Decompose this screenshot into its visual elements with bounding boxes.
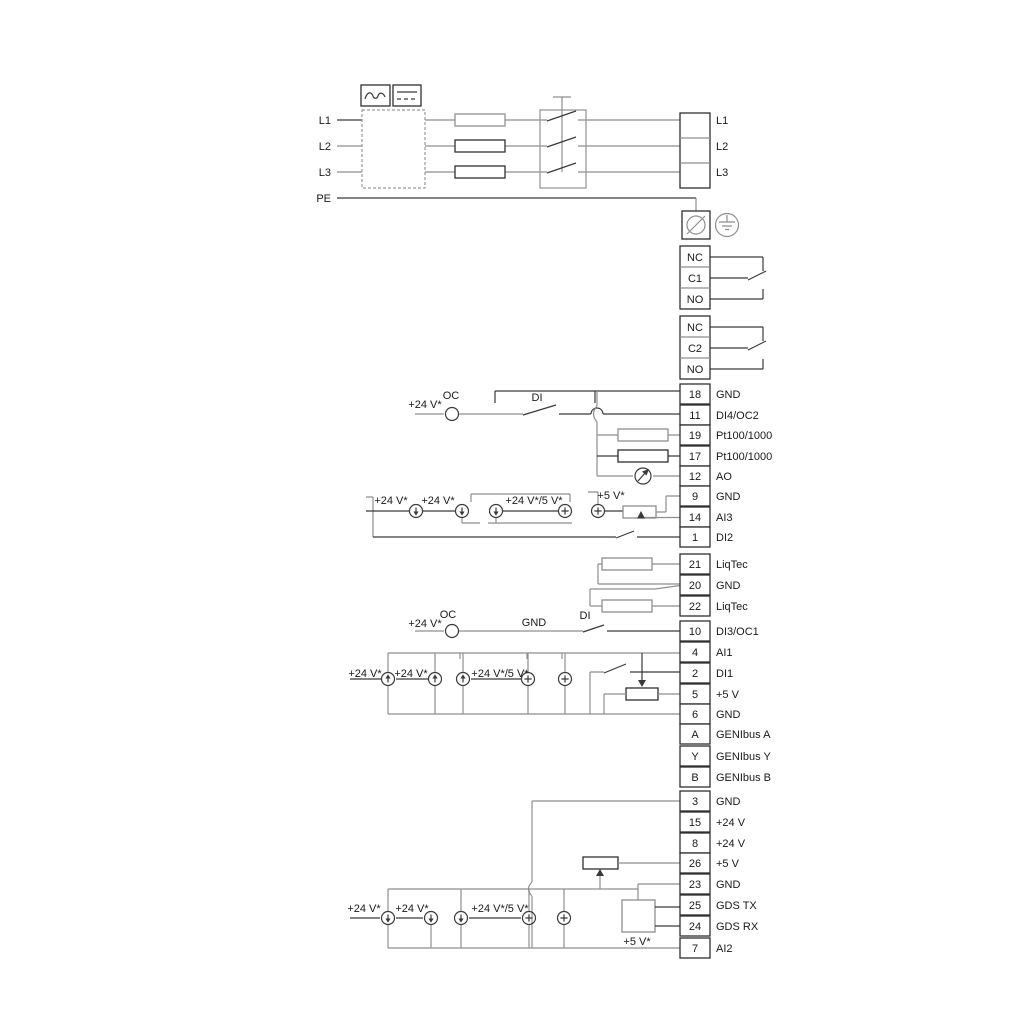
label-g-supply1: +24 V* [347,903,381,915]
terminal-label-17: Pt100/1000 [716,451,772,463]
terminal-label-11: DI4/OC2 [716,410,759,422]
terminal-pin-8: 8 [692,838,698,850]
terminal-label-B: GENIbus B [716,772,771,784]
current-source-icon [457,673,470,686]
terminal-label-7: AI2 [716,943,733,955]
label-d-di: DI [580,610,591,622]
input-phase-label-L2: L2 [319,141,331,153]
section-di4 [415,391,680,484]
terminal-pin-26: 26 [689,858,701,870]
relay-terminal-NC: NC [687,322,703,334]
dc-symbol-box [393,85,421,106]
label-g-5v: +5 V* [623,936,651,948]
label-d-oc: OC [440,609,457,621]
label-g-supply3: +24 V*/5 V* [471,903,529,915]
terminal-pin-24: 24 [689,921,701,933]
di1-switch [604,664,626,673]
terminal-label-21: LiqTec [716,559,748,571]
terminal-label-26: +5 V [716,858,740,870]
pt100-resistor-19 [618,429,668,441]
terminal-pin-6: 6 [692,709,698,721]
power-input-lines [337,120,696,211]
open-collector-icon [446,408,459,421]
voltage-source-icon [559,673,572,686]
open-collector-icon [446,625,459,638]
terminal-pin-21: 21 [689,559,701,571]
input-phase-label-L3: L3 [319,167,331,179]
output-phase-label-L1: L1 [716,115,728,127]
terminal-label-9: GND [716,491,741,503]
terminal-pin-18: 18 [689,389,701,401]
pe-terminal [682,211,710,239]
terminal-pin-Y: Y [691,751,699,763]
terminal-label-10: DI3/OC1 [716,626,759,638]
ac-symbol-box [361,85,390,106]
wiring-diagram-svg: L1L2L3PEL1L2L3NCC1NONCC2NO18GND11DI4/OC2… [0,0,1024,1024]
terminal-pin-B: B [691,772,698,784]
label-a-supply: +24 V* [408,399,442,411]
liqtec-sensor-21 [602,558,652,570]
label-g-supply2: +24 V* [395,903,429,915]
terminal-pin-3: 3 [692,796,698,808]
label-e-supply3: +24 V*/5 V* [471,668,529,680]
terminal-label-1: DI2 [716,532,733,544]
terminal-label-14: AI3 [716,512,733,524]
terminal-label-20: GND [716,580,741,592]
setpoint-potentiometer [583,857,618,869]
section-di3 [415,625,680,638]
terminal-pin-12: 12 [689,471,701,483]
input-phase-label-L1: L1 [319,115,331,127]
terminal-label-15: +24 V [716,817,746,829]
terminal-pin-A: A [691,729,699,741]
wiring-diagram: L1L2L3PEL1L2L3NCC1NONCC2NO18GND11DI4/OC2… [0,0,1024,1024]
voltage-source-icon [558,912,571,925]
analog-output-meter-icon [635,468,651,484]
current-source-icon [382,912,395,925]
terminal-pin-7: 7 [692,943,698,955]
label-b-supply2: +24 V* [421,495,455,507]
label-b-supply3: +24 V*/5 V* [505,495,563,507]
relay-terminal-NO: NO [687,364,704,376]
terminal-label-8: +24 V [716,838,746,850]
di2-switch [616,531,634,538]
section-bottom [350,801,680,948]
output-terminal-block [680,113,710,188]
liqtec-sensor-22 [602,600,652,612]
terminal-label-19: Pt100/1000 [716,430,772,442]
terminal-label-2: DI1 [716,668,733,680]
terminal-pin-2: 2 [692,668,698,680]
terminal-pin-19: 19 [689,430,701,442]
label-d-gnd: GND [522,617,547,629]
label-a-di: DI [532,392,543,404]
terminal-pin-15: 15 [689,817,701,829]
pt100-resistor-17 [618,450,668,462]
output-phase-label-L2: L2 [716,141,728,153]
label-b-supply1: +24 V* [374,495,408,507]
relay-terminal-NO: NO [687,294,704,306]
ground-icon [716,214,739,237]
terminal-pin-20: 20 [689,580,701,592]
terminal-pin-25: 25 [689,900,701,912]
relay-terminal-C1: C1 [688,273,702,285]
terminal-label-6: GND [716,709,741,721]
gds-sensor-box [622,900,655,932]
terminal-pin-10: 10 [689,626,701,638]
emc-filter [362,110,425,188]
terminal-label-22: LiqTec [716,601,748,613]
current-source-icon [490,505,503,518]
label-b-5v: +5 V* [597,490,625,502]
terminal-label-23: GND [716,879,741,891]
input-phase-label-PE: PE [316,193,331,205]
relay1-contact [710,257,766,299]
terminal-label-25: GDS TX [716,900,757,912]
output-phase-label-L3: L3 [716,167,728,179]
terminal-pin-11: 11 [689,410,700,422]
terminal-label-Y: GENIbus Y [716,751,771,763]
current-source-icon [456,505,469,518]
relay2-contact [710,327,766,369]
current-source-icon [382,673,395,686]
terminal-pin-14: 14 [689,512,701,524]
di3-switch [583,625,604,632]
main-disconnect-switch [540,97,586,188]
voltage-source-icon [592,505,605,518]
label-d-supply: +24 V* [408,618,442,630]
terminal-label-18: GND [716,389,741,401]
current-source-icon [429,673,442,686]
terminal-pin-17: 17 [689,451,701,463]
relay-terminal-NC: NC [687,252,703,264]
terminal-pin-23: 23 [689,879,701,891]
terminal-pin-5: 5 [692,689,698,701]
terminal-pin-9: 9 [692,491,698,503]
current-source-icon [455,912,468,925]
label-e-supply1: +24 V* [348,668,382,680]
terminal-label-12: AO [716,471,732,483]
terminal-pin-4: 4 [692,647,698,659]
terminal-label-5: +5 V [716,689,740,701]
relay-terminal-C2: C2 [688,343,702,355]
terminal-pin-1: 1 [692,532,698,544]
section-liqtec [590,558,680,612]
terminal-label-A: GENIbus A [716,729,771,741]
label-a-oc: OC [443,390,460,402]
label-e-supply2: +24 V* [394,668,428,680]
terminal-pin-22: 22 [689,601,701,613]
terminal-label-3: GND [716,796,741,808]
section-ai1 [350,653,680,714]
setpoint-potentiometer [626,688,658,700]
terminal-label-24: GDS RX [716,921,759,933]
fuses [455,114,505,178]
terminal-label-4: AI1 [716,647,733,659]
